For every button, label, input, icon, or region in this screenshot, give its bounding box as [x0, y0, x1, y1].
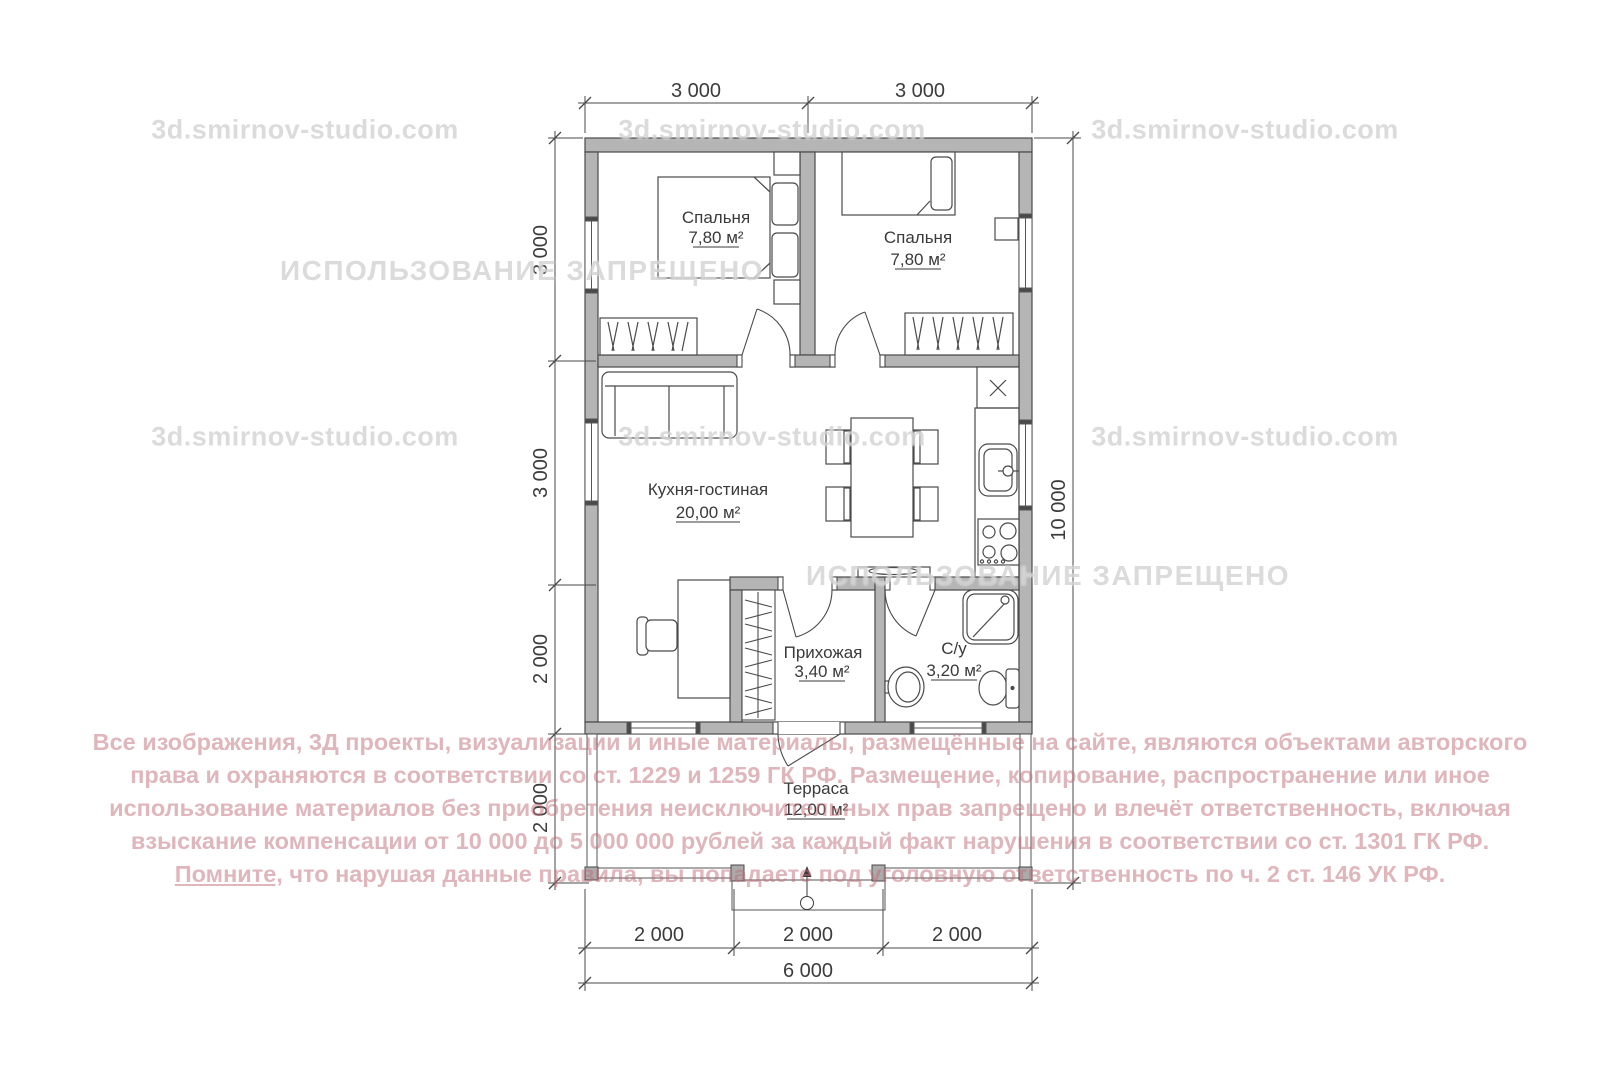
window-bedroom2-right: [1019, 214, 1032, 292]
terrace-structure: [585, 734, 1032, 910]
toilet: [979, 669, 1019, 708]
dining-table: [851, 418, 913, 537]
wall-bedrooms-living-a: [598, 355, 742, 367]
desk: [678, 580, 730, 698]
living-area: 20,00 м²: [676, 503, 741, 522]
floor-plan-canvas: 3 000 3 000 3 000 3 000 2 000 2 000 10 0…: [0, 0, 1620, 1080]
dim-top-1: 3 000: [671, 80, 721, 102]
window-bedroom1-left: [585, 217, 598, 293]
terrace-rail-left: [587, 734, 597, 867]
pillow: [772, 233, 798, 277]
nightstand: [774, 280, 800, 304]
wardrobe-bedroom1: [600, 318, 697, 355]
wall-hall-left: [730, 590, 742, 722]
wall-between-bedrooms: [800, 152, 815, 355]
terrace-label: Терраса: [783, 779, 849, 798]
pillow: [931, 157, 952, 210]
bathroom-area: 3,20 м²: [926, 661, 981, 680]
nightstand: [995, 218, 1018, 240]
stove: [978, 519, 1019, 565]
dim-top-2: 3 000: [895, 80, 945, 102]
dining-table-set: [826, 418, 938, 537]
terrace-post: [872, 865, 885, 881]
terrace-rail-bottom-right: [885, 868, 1019, 878]
door-entrance: [773, 722, 845, 766]
door-bedroom2: [830, 312, 885, 367]
bedroom1-label: Спальня: [682, 208, 750, 227]
desk-chair-seat: [646, 620, 677, 651]
dim-bottom-3: 2 000: [932, 924, 982, 946]
terrace-post: [1019, 867, 1032, 880]
bathroom-label: С/у: [941, 639, 967, 658]
wall-top: [585, 138, 1032, 152]
terrace-rail-right: [1020, 734, 1031, 867]
terrace-post: [731, 865, 744, 881]
floor-plan-drawing: 3 000 3 000 3 000 3 000 2 000 2 000 10 0…: [0, 0, 1620, 1080]
shower: [963, 590, 1018, 644]
dim-bottom-2: 2 000: [783, 924, 833, 946]
kitchen-sink: [979, 444, 1019, 496]
window-bathroom-bottom: [910, 722, 986, 734]
dim-bottom-total: 6 000: [783, 960, 833, 982]
bedroom1-furniture: [600, 152, 800, 355]
sofa: [602, 372, 737, 438]
bedroom2-area: 7,80 м²: [890, 250, 945, 269]
wall-bedrooms-living-c: [880, 355, 1019, 367]
dim-bottom-1: 2 000: [634, 924, 684, 946]
bathroom-sink: [885, 667, 924, 707]
bedroom2-label: Спальня: [884, 228, 952, 247]
hallway-area: 3,40 м²: [794, 662, 849, 681]
door-bedroom1: [737, 309, 795, 367]
terrace-post: [585, 867, 598, 880]
wall-hall-bath: [875, 577, 885, 722]
wall-hall-top-b: [832, 577, 875, 590]
wall-kitchen-bath: [935, 577, 1019, 590]
dim-left-1: 3 000: [530, 225, 552, 275]
bedroom1-area: 7,80 м²: [688, 228, 743, 247]
window-kitchen-right: [1019, 420, 1032, 510]
wall-hall-top-a: [730, 577, 783, 590]
wardrobe-bedroom2: [905, 313, 1013, 355]
window-bottom-left: [627, 722, 700, 734]
hallway-label: Прихожая: [784, 643, 863, 662]
living-label: Кухня-гостиная: [648, 480, 768, 499]
door-hallway: [778, 577, 837, 637]
pillow: [772, 183, 798, 225]
nightstand: [774, 152, 800, 175]
dim-right: 10 000: [1048, 479, 1070, 540]
desk-and-chair: [637, 580, 730, 698]
console-table: [858, 567, 930, 577]
terrace-area: 12,00 м²: [784, 800, 849, 819]
window-living-left: [585, 419, 598, 505]
terrace-rail-bottom-left: [598, 868, 732, 878]
dim-left-3: 2 000: [530, 634, 552, 684]
dim-left-2: 3 000: [530, 448, 552, 498]
dim-left-4: 2 000: [530, 783, 552, 833]
door-bathroom: [885, 577, 935, 636]
hallway-wardrobe: [742, 590, 775, 720]
wall-bedrooms-living-b: [790, 355, 835, 367]
